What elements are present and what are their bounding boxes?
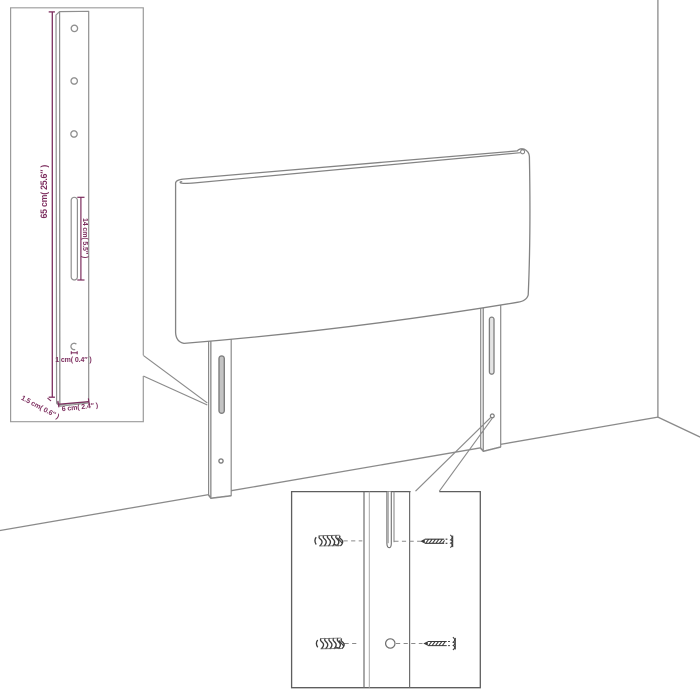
svg-text:14 cm( 5.5″ ): 14 cm( 5.5″ ) [81, 218, 88, 258]
svg-text:1 cm( 0.4″ ): 1 cm( 0.4″ ) [55, 357, 91, 364]
svg-text:65 cm( 25.6″ ): 65 cm( 25.6″ ) [39, 165, 49, 219]
